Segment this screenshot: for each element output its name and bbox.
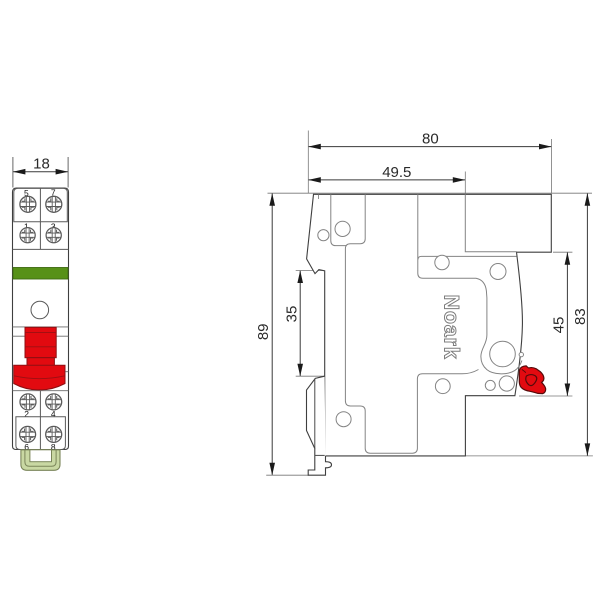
- svg-text:49.5: 49.5: [382, 164, 411, 181]
- svg-text:Noark: Noark: [440, 295, 464, 360]
- svg-text:35: 35: [283, 306, 300, 323]
- svg-text:83: 83: [572, 308, 589, 325]
- svg-text:45: 45: [550, 317, 567, 334]
- svg-text:80: 80: [422, 130, 439, 147]
- svg-text:89: 89: [255, 323, 272, 340]
- svg-text:18: 18: [33, 155, 50, 172]
